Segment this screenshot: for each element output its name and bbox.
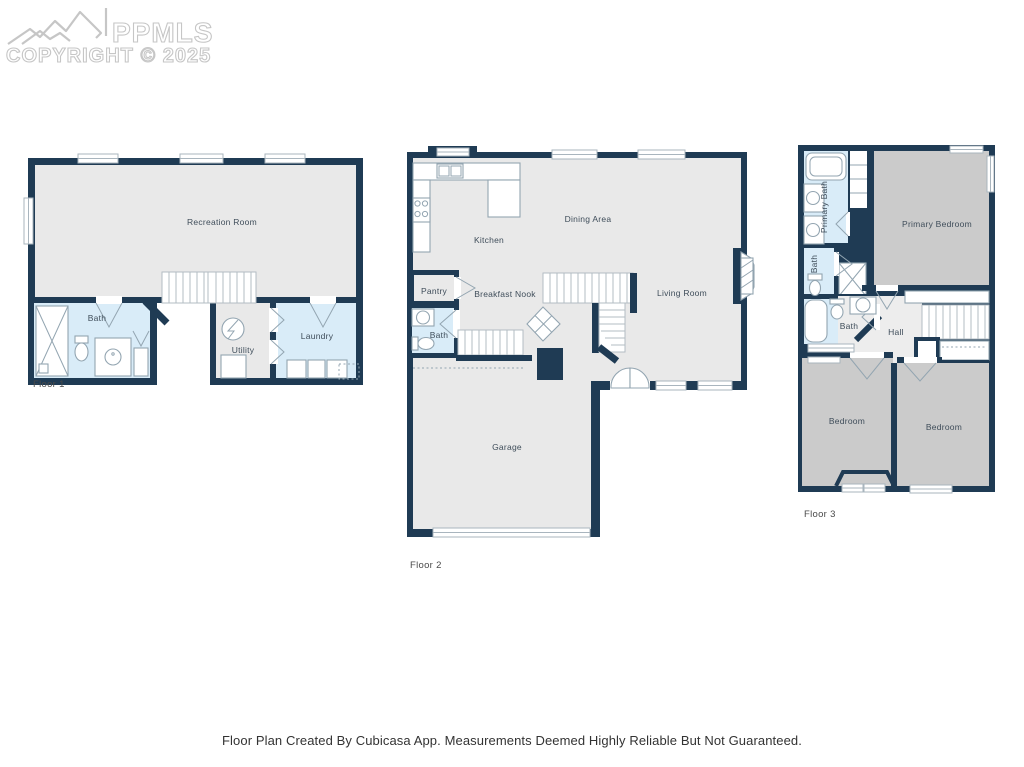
- closet: [905, 291, 989, 303]
- floor-1-label: Floor 1: [33, 379, 65, 390]
- stove-icon: [413, 198, 430, 222]
- stairs-entry: [599, 303, 625, 352]
- toilet-icon: [808, 274, 822, 296]
- watermark-brand: PPMLS: [112, 17, 213, 48]
- room-label-bath1: Bath: [88, 313, 107, 323]
- sink-icon: [850, 297, 876, 314]
- floor-plan-page: PPMLS COPYRIGHT © 2025: [0, 0, 1024, 767]
- room-label-primary-bedroom: Primary Bedroom: [902, 219, 972, 229]
- floor-3-label: Floor 3: [804, 509, 836, 520]
- watermark-copyright: COPYRIGHT © 2025: [6, 45, 211, 67]
- disclaimer-text: Floor Plan Created By Cubicasa App. Meas…: [0, 733, 1024, 748]
- floor-plan-drawing: PPMLS COPYRIGHT © 2025: [0, 0, 1024, 767]
- room-label-bath2: Bath: [430, 330, 449, 340]
- floor-3-plan: Primary Bath Primary Bedroom Bath Bath H…: [798, 145, 995, 520]
- room-label-living: Living Room: [657, 288, 707, 298]
- room-label-pantry: Pantry: [421, 286, 448, 296]
- toilet-icon: [830, 299, 844, 319]
- mountain-logo-icon: [8, 8, 106, 44]
- stairs-floor3: [922, 305, 989, 339]
- room-label-garage: Garage: [492, 442, 522, 452]
- toilet-icon: [75, 336, 88, 361]
- stairs-floor1: [162, 272, 256, 303]
- room-label-bath-lower: Bath: [840, 321, 859, 331]
- room-label-kitchen: Kitchen: [474, 235, 504, 245]
- room-label-recreation: Recreation Room: [187, 217, 257, 227]
- room-label-hall: Hall: [888, 327, 904, 337]
- shower-icon: [839, 263, 866, 296]
- room-label-utility: Utility: [232, 345, 255, 355]
- primary-bedroom-floor: [874, 151, 989, 285]
- electric-panel-icon: [222, 318, 244, 340]
- room-label-breakfast: Breakfast Nook: [474, 289, 536, 299]
- kitchen-sink-icon: [437, 164, 463, 178]
- room-label-bedroom-left: Bedroom: [829, 416, 865, 426]
- shower-icon: [36, 306, 68, 376]
- stairs-floor2-up: [543, 273, 633, 303]
- sink-icon: [95, 338, 131, 376]
- water-heater-icon: [221, 355, 246, 378]
- watermark: PPMLS COPYRIGHT © 2025: [6, 8, 213, 67]
- floor-2-plan: Kitchen Dining Area Pantry Breakfast Noo…: [407, 146, 754, 571]
- closet-shelf: [134, 348, 148, 376]
- garage-door: [433, 528, 590, 537]
- room-label-primary-bath: Primary Bath: [819, 181, 829, 233]
- fireplace-icon: [733, 248, 754, 304]
- bathtub-icon: [806, 153, 846, 180]
- bathtub-icon: [805, 300, 827, 342]
- room-label-dining: Dining Area: [565, 214, 612, 224]
- room-label-bedroom-right: Bedroom: [926, 422, 962, 432]
- wardrobe: [940, 341, 989, 360]
- room-label-bath-upper: Bath: [809, 255, 819, 274]
- floor-2-label: Floor 2: [410, 560, 442, 571]
- stair-landing: [916, 339, 938, 360]
- floor-1-plan: Recreation Room Bath Utility Laundry Flo…: [24, 154, 363, 390]
- stairs-floor2-down: [458, 330, 523, 355]
- sink-icon: [412, 309, 434, 326]
- room-label-laundry: Laundry: [301, 331, 334, 341]
